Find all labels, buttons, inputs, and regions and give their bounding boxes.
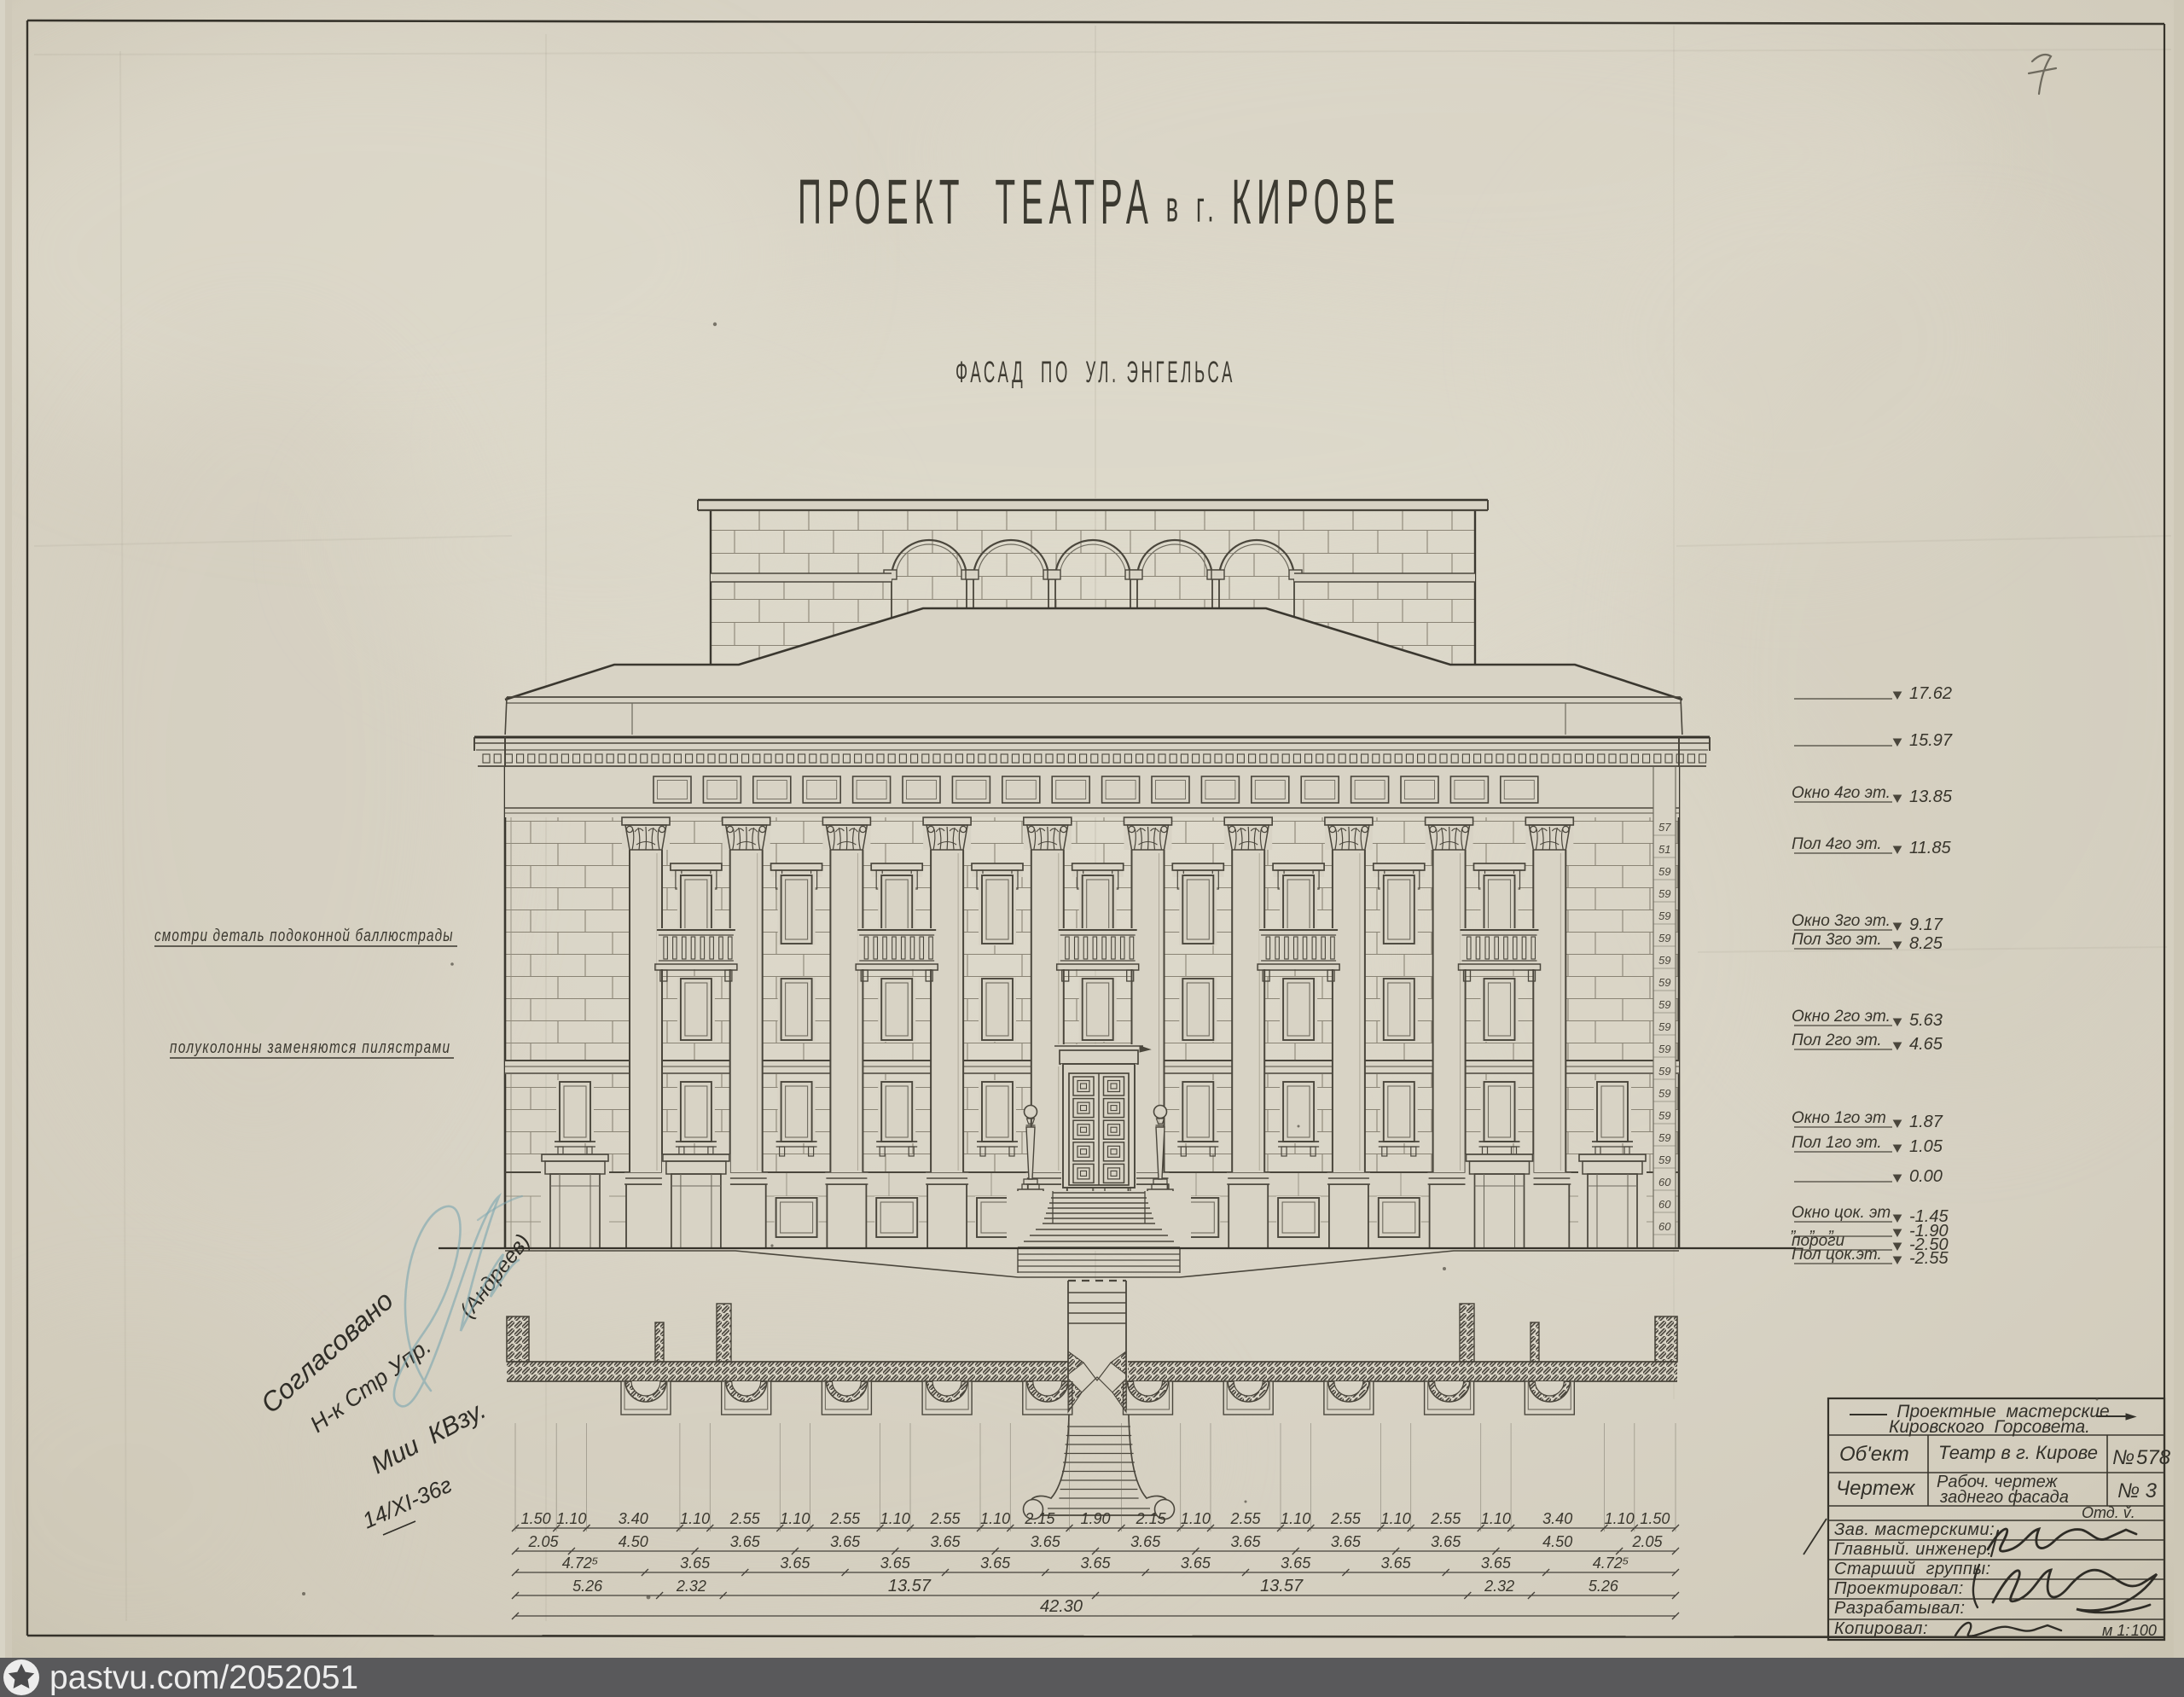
svg-text:1.10: 1.10 [680, 1510, 710, 1527]
svg-text:3.65: 3.65 [780, 1555, 810, 1572]
svg-text:3.65: 3.65 [980, 1555, 1011, 1572]
svg-text:№ 578: № 578 [2112, 1446, 2171, 1469]
svg-text:1.87: 1.87 [1909, 1113, 1943, 1131]
svg-text:3.65: 3.65 [1381, 1555, 1412, 1572]
svg-text:Зав. мастерскими:: Зав. мастерскими: [1834, 1520, 1995, 1539]
svg-text:Кировского Горсовета.: Кировского Горсовета. [1889, 1417, 2090, 1437]
svg-text:2.05: 2.05 [1631, 1533, 1663, 1550]
svg-text:4.72⁵: 4.72⁵ [562, 1555, 599, 1572]
svg-text:3.65: 3.65 [880, 1555, 911, 1572]
svg-text:2.55: 2.55 [729, 1510, 761, 1527]
svg-text:№ 3: № 3 [2117, 1479, 2158, 1502]
svg-text:Об'ект: Об'ект [1839, 1443, 1909, 1466]
svg-text:Пол 4го эт.: Пол 4го эт. [1792, 835, 1882, 853]
svg-text:Пол цок.эт.: Пол цок.эт. [1792, 1246, 1882, 1264]
svg-text:1.10: 1.10 [1181, 1510, 1211, 1527]
svg-text:1.90: 1.90 [1080, 1510, 1110, 1527]
svg-text:Пол 3го эт.: Пол 3го эт. [1792, 931, 1882, 949]
svg-text:Окно 1го эт: Окно 1го эт [1792, 1109, 1886, 1127]
svg-text:1.10: 1.10 [880, 1510, 910, 1527]
svg-text:Чертеж: Чертеж [1836, 1477, 1916, 1500]
svg-text:3.65: 3.65 [1230, 1533, 1261, 1550]
svg-text:2.15: 2.15 [1136, 1510, 1167, 1527]
svg-text:3.65: 3.65 [830, 1533, 861, 1550]
svg-text:59: 59 [1658, 1154, 1670, 1166]
svg-text:59: 59 [1658, 1131, 1670, 1144]
svg-text:3.40: 3.40 [1542, 1510, 1572, 1527]
svg-text:смотри деталь подоконной баллю: смотри деталь подоконной баллюстрады [154, 926, 454, 944]
svg-text:2.55: 2.55 [1330, 1510, 1362, 1527]
svg-text:3.65: 3.65 [1431, 1533, 1461, 1550]
svg-text:1.50: 1.50 [1640, 1510, 1670, 1527]
svg-text:1.10: 1.10 [556, 1510, 586, 1527]
svg-text:60: 60 [1658, 1220, 1671, 1233]
svg-text:1.05: 1.05 [1909, 1137, 1943, 1156]
svg-text:Окно 3го эт.: Окно 3го эт. [1792, 912, 1891, 930]
svg-text:59: 59 [1658, 910, 1670, 922]
svg-text:4.72⁵: 4.72⁵ [1593, 1555, 1629, 1572]
svg-text:2.15: 2.15 [1024, 1510, 1055, 1527]
svg-text:полуколонны заменяются пилястр: полуколонны заменяются пилястрами [170, 1037, 450, 1056]
svg-text:1.10: 1.10 [1481, 1510, 1511, 1527]
svg-text:Главный. инженер:: Главный. инженер: [1834, 1540, 1992, 1559]
svg-text:59: 59 [1658, 887, 1670, 900]
svg-text:Пол 1го эт.: Пол 1го эт. [1792, 1134, 1882, 1152]
svg-text:4.50: 4.50 [1542, 1533, 1572, 1550]
svg-text:2.55: 2.55 [929, 1510, 961, 1527]
svg-text:3.40: 3.40 [619, 1510, 648, 1527]
svg-text:2.32: 2.32 [676, 1578, 706, 1595]
svg-text:60: 60 [1658, 1176, 1671, 1188]
svg-text:1.10: 1.10 [1605, 1510, 1635, 1527]
svg-text:5.26: 5.26 [1589, 1578, 1619, 1595]
svg-text:Театр в г. Кирове: Театр в г. Кирове [1938, 1442, 2098, 1463]
svg-text:9.17: 9.17 [1909, 915, 1943, 934]
svg-text:59: 59 [1658, 998, 1670, 1011]
svg-text:59: 59 [1658, 865, 1670, 878]
svg-text:42.30: 42.30 [1040, 1597, 1083, 1616]
svg-text:3.65: 3.65 [730, 1533, 761, 1550]
svg-text:Пол 2го эт.: Пол 2го эт. [1792, 1032, 1882, 1049]
svg-text:1.50: 1.50 [521, 1510, 551, 1527]
svg-text:4.50: 4.50 [619, 1533, 648, 1550]
svg-text:5.26: 5.26 [572, 1578, 603, 1595]
svg-text:11.85: 11.85 [1909, 839, 1951, 857]
svg-text:2.55: 2.55 [829, 1510, 861, 1527]
svg-text:59: 59 [1658, 976, 1670, 989]
svg-text:2.32: 2.32 [1484, 1578, 1514, 1595]
svg-text:4.65: 4.65 [1909, 1035, 1943, 1054]
svg-text:59: 59 [1658, 1043, 1670, 1055]
svg-text:3.65: 3.65 [1031, 1533, 1061, 1550]
svg-text:Копировал:: Копировал: [1834, 1619, 1928, 1638]
svg-text:Старший группы:: Старший группы: [1834, 1560, 1991, 1578]
svg-text:м 1: 100: м 1: 100 [2102, 1622, 2157, 1639]
svg-text:Окно 4го эт.: Окно 4го эт. [1792, 784, 1891, 802]
svg-text:59: 59 [1658, 1109, 1670, 1122]
svg-text:3.65: 3.65 [680, 1555, 711, 1572]
svg-text:ПРОЕКТ ТЕАТРА в г. КИРОВЕ: ПРОЕКТ ТЕАТРА в г. КИРОВЕ [798, 166, 1401, 237]
svg-text:13.57: 13.57 [1260, 1577, 1304, 1595]
svg-text:Проектировал:: Проектировал: [1834, 1579, 1964, 1598]
svg-text:Разрабатывал:: Разрабатывал: [1834, 1599, 1966, 1618]
svg-text:13.57: 13.57 [888, 1577, 932, 1595]
svg-text:ФАСАД ПО УЛ. ЭНГЕЛЬСА: ФАСАД ПО УЛ. ЭНГЕЛЬСА [955, 356, 1235, 390]
svg-text:60: 60 [1658, 1198, 1671, 1211]
svg-text:2.05: 2.05 [527, 1533, 559, 1550]
svg-text:15.97: 15.97 [1909, 731, 1953, 750]
svg-text:pastvu.com/2052051: pastvu.com/2052051 [49, 1659, 358, 1696]
svg-text:3.65: 3.65 [1130, 1533, 1161, 1550]
svg-text:59: 59 [1658, 954, 1670, 967]
svg-text:заднего фасада: заднего фасада [1939, 1488, 2069, 1507]
svg-text:3.65: 3.65 [1481, 1555, 1512, 1572]
svg-text:3.65: 3.65 [1331, 1533, 1362, 1550]
svg-text:59: 59 [1658, 1065, 1670, 1078]
svg-text:Отд. v̌.: Отд. v̌. [2082, 1504, 2135, 1521]
svg-text:1.10: 1.10 [980, 1510, 1010, 1527]
svg-text:3.65: 3.65 [1181, 1555, 1211, 1572]
svg-text:51: 51 [1658, 843, 1670, 856]
svg-text:13.85: 13.85 [1909, 787, 1953, 806]
svg-text:-2.55: -2.55 [1909, 1249, 1949, 1268]
svg-text:59: 59 [1658, 1020, 1670, 1033]
svg-text:0.00: 0.00 [1909, 1167, 1943, 1186]
svg-text:57: 57 [1658, 821, 1671, 834]
svg-text:59: 59 [1658, 932, 1670, 944]
svg-text:Окно 2го эт.: Окно 2го эт. [1792, 1008, 1891, 1026]
svg-text:1.10: 1.10 [780, 1510, 810, 1527]
svg-text:3.65: 3.65 [1080, 1555, 1111, 1572]
svg-text:3.65: 3.65 [930, 1533, 961, 1550]
svg-text:2.55: 2.55 [1229, 1510, 1261, 1527]
svg-text:1.10: 1.10 [1381, 1510, 1411, 1527]
svg-text:2.55: 2.55 [1430, 1510, 1461, 1527]
svg-text:17.62: 17.62 [1909, 684, 1952, 703]
svg-text:5.63: 5.63 [1909, 1011, 1943, 1030]
svg-text:59: 59 [1658, 1087, 1670, 1100]
svg-text:8.25: 8.25 [1909, 934, 1943, 953]
svg-text:3.65: 3.65 [1281, 1555, 1311, 1572]
svg-text:1.10: 1.10 [1281, 1510, 1310, 1527]
